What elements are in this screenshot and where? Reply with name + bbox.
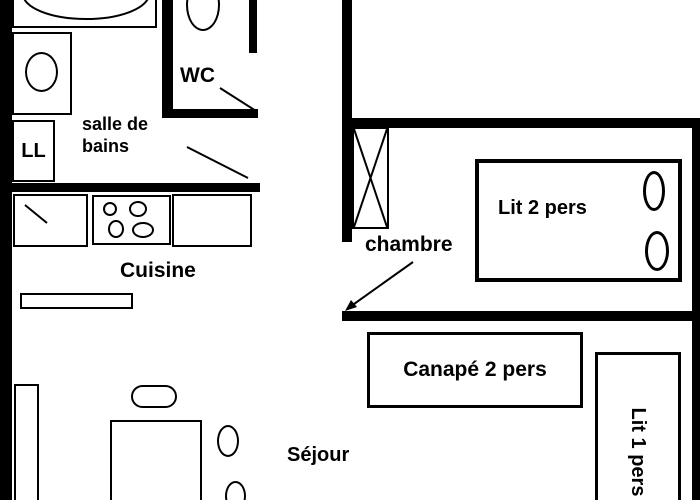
stove-burner-1	[104, 203, 116, 215]
kitchen-label: Cuisine	[120, 259, 196, 282]
wc-pointer-line	[220, 88, 256, 111]
single-bed-label: Lit 1 pers	[627, 367, 649, 500]
counter-diagonal	[25, 205, 47, 223]
bathroom-label-line2: bains	[82, 135, 148, 157]
floor-plan: LL WC salle de bains Cuisine chambre Lit…	[0, 0, 700, 500]
plan-lines-overlay	[0, 0, 700, 500]
double-bed-label: Lit 2 pers	[498, 197, 587, 219]
bathroom-pointer-line	[187, 147, 248, 178]
wc-label: WC	[180, 64, 215, 87]
bedroom-pointer-arrowhead	[345, 300, 357, 311]
living-room-label: Séjour	[287, 444, 349, 466]
stove-burner-4	[133, 223, 153, 237]
bathroom-label: salle de bains	[82, 113, 148, 157]
stove-burner-2	[130, 202, 146, 216]
bathroom-label-line1: salle de	[82, 113, 148, 135]
stove-burner-3	[109, 221, 123, 237]
sofa-label: Canapé 2 pers	[367, 358, 583, 381]
bathtub-basin	[23, 0, 149, 19]
bedroom-pointer-line	[347, 262, 413, 309]
bedroom-label: chambre	[365, 233, 453, 256]
